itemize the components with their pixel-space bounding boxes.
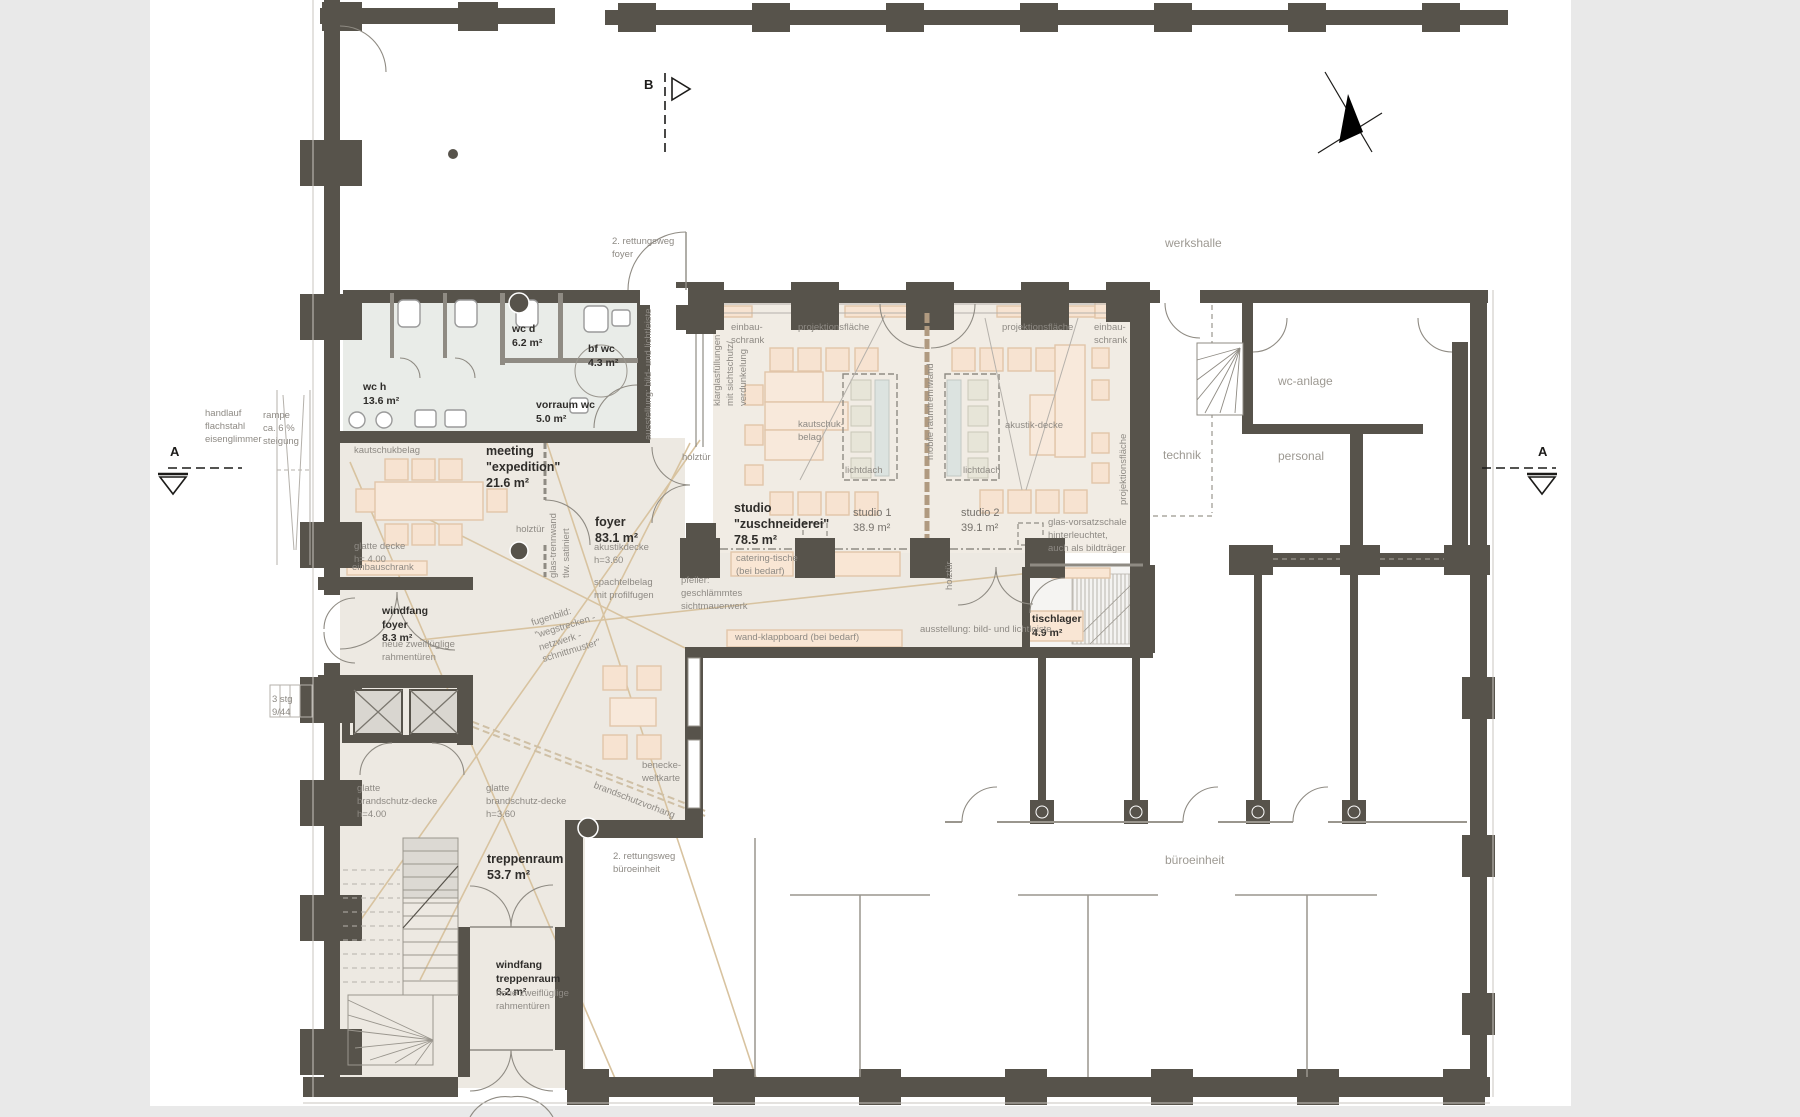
north-arrow-icon <box>1318 72 1382 153</box>
floor-plan: wc h 13.6 m² wc d 6.2 m² bf wc 4.3 m² vo… <box>0 0 1800 1117</box>
section-line-a-left <box>158 468 242 494</box>
section-line-b-top <box>665 73 690 152</box>
floor-plan-graphics <box>0 0 1800 1117</box>
